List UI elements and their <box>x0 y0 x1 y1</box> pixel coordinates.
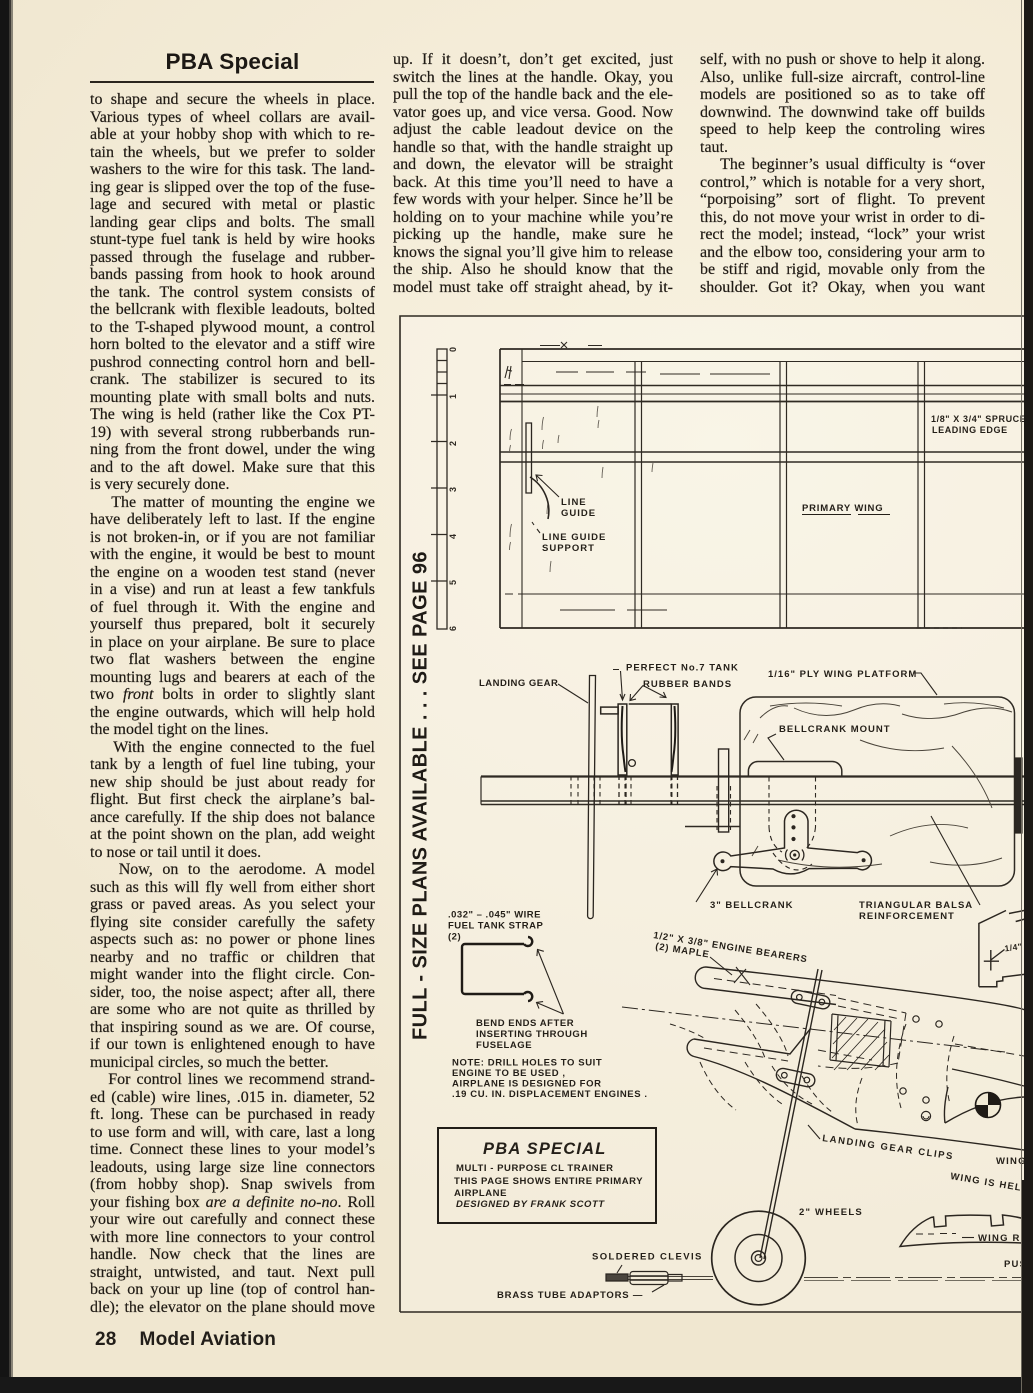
svg-text:ENGINE TO BE USED ,: ENGINE TO BE USED , <box>452 1068 566 1079</box>
svg-text:DESIGNED BY FRANK SCOTT: DESIGNED BY FRANK SCOTT <box>456 1199 605 1210</box>
svg-text:.19 CU. IN. DISPLACEMENT ENGI: .19 CU. IN. DISPLACEMENT ENGINES . <box>452 1089 648 1100</box>
svg-text:BELLCRANK MOUNT: BELLCRANK MOUNT <box>779 724 891 735</box>
svg-text:TRIANGULAR BALSA: TRIANGULAR BALSA <box>859 900 973 911</box>
svg-text:LINE: LINE <box>561 497 587 508</box>
svg-text:INSERTING THROUGH: INSERTING THROUGH <box>476 1029 588 1040</box>
svg-text:PBA SPECIAL: PBA SPECIAL <box>483 1140 607 1158</box>
svg-text:GUIDE: GUIDE <box>561 508 596 519</box>
svg-text:MULTI - PURPOSE CL TRAINER: MULTI - PURPOSE CL TRAINER <box>456 1163 614 1174</box>
svg-text:FULL - SIZE PLANS AVAILABLE .: FULL - SIZE PLANS AVAILABLE . . . SEE PA… <box>410 551 432 1040</box>
svg-text:RUBBER BANDS: RUBBER BANDS <box>643 679 732 690</box>
svg-text:SUPPORT: SUPPORT <box>542 543 595 554</box>
svg-text:NOTE: DRILL HOLES TO SUIT: NOTE: DRILL HOLES TO SUIT <box>452 1058 602 1069</box>
svg-text:BEND ENDS AFTER: BEND ENDS AFTER <box>476 1018 574 1029</box>
svg-text:PRIMARY WING: PRIMARY WING <box>802 503 883 514</box>
svg-text:FUEL TANK STRAP: FUEL TANK STRAP <box>448 921 543 932</box>
svg-text:4: 4 <box>448 534 458 539</box>
svg-text:WING RI: WING RI <box>978 1233 1024 1244</box>
svg-text:5: 5 <box>448 580 458 585</box>
svg-text:2" WHEELS: 2" WHEELS <box>799 1207 863 1218</box>
svg-text:.032" – .045" WIRE: .032" – .045" WIRE <box>448 910 541 921</box>
svg-text:WING: WING <box>996 1156 1027 1167</box>
svg-text:1/16" PLY WING PLATFORM: 1/16" PLY WING PLATFORM <box>768 669 917 680</box>
svg-text:(2): (2) <box>448 932 461 943</box>
svg-text:1: 1 <box>448 394 458 399</box>
svg-text:THIS PAGE SHOWS ENTIRE PRI: THIS PAGE SHOWS ENTIRE PRIMARY <box>454 1176 643 1187</box>
svg-text:FUSELAGE: FUSELAGE <box>476 1040 532 1051</box>
svg-text:SOLDERED CLEVIS: SOLDERED CLEVIS <box>592 1252 703 1263</box>
svg-text:6: 6 <box>448 626 458 631</box>
svg-text:3" BELLCRANK: 3" BELLCRANK <box>710 900 794 911</box>
svg-text:REINFORCEMENT: REINFORCEMENT <box>859 911 955 922</box>
svg-text:LEADING EDGE: LEADING EDGE <box>932 425 1008 435</box>
svg-text:2: 2 <box>448 441 458 446</box>
svg-text:AIRPLANE: AIRPLANE <box>454 1188 507 1199</box>
svg-text:BRASS TUBE ADAPTORS —: BRASS TUBE ADAPTORS — <box>497 1290 643 1301</box>
svg-text:PERFECT No.7 TANK: PERFECT No.7 TANK <box>626 663 739 674</box>
svg-text:LINE GUIDE: LINE GUIDE <box>542 532 606 543</box>
svg-text:AIRPLANE IS DESIGNED FOR: AIRPLANE IS DESIGNED FOR <box>452 1079 602 1090</box>
svg-text:0: 0 <box>448 347 458 352</box>
svg-text:1/8" X 3/4" SPRUCE: 1/8" X 3/4" SPRUCE <box>931 414 1026 424</box>
svg-text:LANDING GEAR: LANDING GEAR <box>479 678 558 689</box>
svg-text:3: 3 <box>448 487 458 492</box>
